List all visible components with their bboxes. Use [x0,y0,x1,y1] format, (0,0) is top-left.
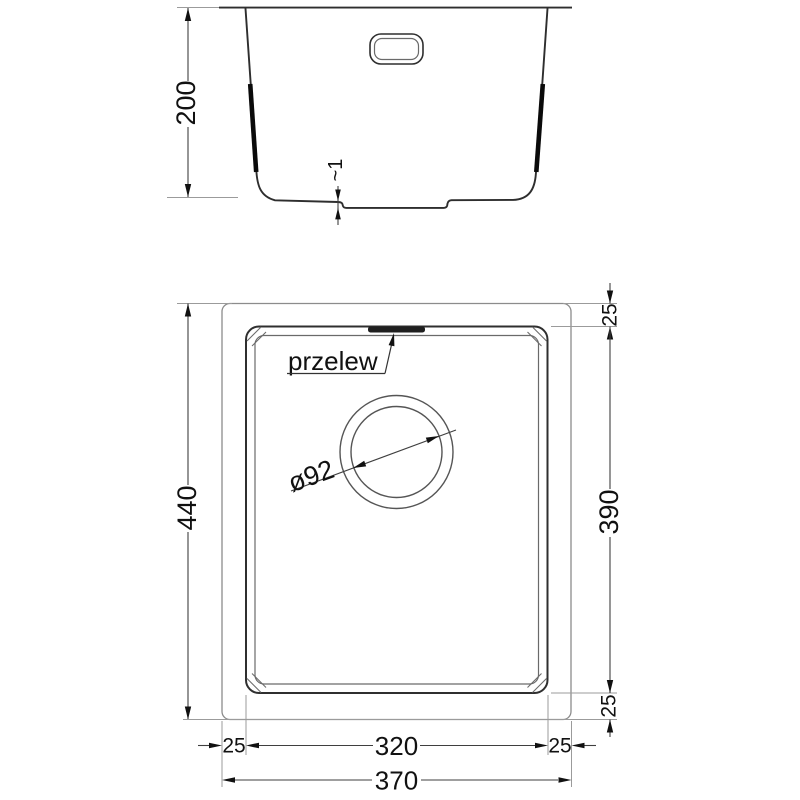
dim-overall-height-label: 440 [172,485,202,530]
plan-outer-edge [222,304,571,720]
dim-recess-arrow-up [335,208,341,220]
dim-bowl-height-arrow-down [607,680,613,693]
dim-rim-bottom-arrow-up [607,720,613,733]
dim-rim-left-arrow [209,743,222,749]
dim-overall-width-arrow-right [559,777,572,783]
plan-overflow-slot [368,327,425,333]
dim-bowl-height-label: 390 [594,489,624,534]
dim-rim-left-label: 25 [222,735,245,758]
dim-bowl-width-arrow-right [535,743,548,749]
drain-diameter-arrow-left [353,461,366,468]
dim-rim-right-arrow [572,743,585,749]
dim-depth-label: 200 [171,80,201,125]
section-mounting-clip-left [250,84,256,172]
section-overflow-inner [375,39,419,60]
dim-bowl-width-arrow-left [246,743,259,749]
section-mounting-clip-right [536,84,543,172]
dim-rim-top-arrow-down [607,291,613,304]
plan-bowl-inner-edge [255,336,539,685]
plan-bowl-outer-edge [246,327,548,694]
dim-rim-top-label: 25 [599,303,622,326]
dim-rim-right-label: 25 [548,735,571,758]
dim-overall-height-arrow-up [185,304,191,317]
drain-diameter-arrow-right [426,436,439,443]
dim-bowl-width-label: 320 [375,731,418,761]
dim-depth-arrow-up [185,8,191,21]
dim-depth-arrow-down [185,184,191,197]
dim-overall-width-arrow-left [222,777,235,783]
drawing-svg: 200 ~1 ø92 prz [0,0,800,800]
plan-corner-chamfers [247,327,547,693]
dim-recess-arrow-down [335,190,341,202]
drain-diameter-label: ø92 [284,454,338,498]
dim-recess-label: ~1 [325,159,347,182]
plan-view: ø92 przelew 440 25 390 25 [172,283,624,796]
dim-overall-height-arrow-down [185,707,191,720]
section-view: 200 ~1 [167,8,572,226]
overflow-label: przelew [288,346,378,376]
dim-rim-bottom-label: 25 [598,694,621,717]
dim-overall-width-label: 370 [375,766,418,796]
sink-technical-drawing: 200 ~1 ø92 prz [0,0,800,800]
